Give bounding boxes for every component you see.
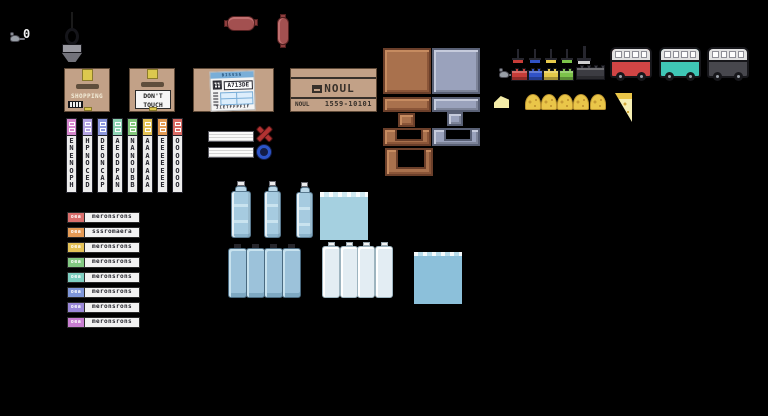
label-tab: oea (67, 227, 85, 238)
can-cap (143, 119, 152, 136)
sausage-end (254, 19, 258, 26)
o-mark-icon (257, 145, 271, 159)
label-text: meronsrons (85, 272, 140, 283)
name-label-6: oeameronsrons (67, 287, 140, 298)
water-bottle (296, 182, 313, 238)
box-handle (76, 84, 99, 89)
can-text: OOOOOOO (174, 138, 181, 190)
cheese-wedge-small (494, 96, 509, 108)
pin-red (512, 49, 524, 63)
brick-long-gray (576, 67, 605, 80)
brick-blue (528, 70, 543, 81)
name-label-4: oeameronsrons (67, 257, 140, 268)
noul-flag-icon (312, 85, 322, 93)
spray-can-2: HPNOCED (82, 118, 93, 193)
crate-brown-bracket-large (385, 148, 433, 176)
can-text: ENENOPH (68, 138, 75, 190)
water-block (320, 192, 368, 240)
counter-value: 0 (23, 27, 30, 41)
pin-yellow (545, 49, 557, 63)
shipping-label-footer: 3IETFFPFIF (211, 103, 254, 109)
brick-yellow (543, 70, 559, 81)
can-text: AEODPAN (114, 138, 121, 190)
cheese-chunk (590, 94, 606, 110)
spray-can-1: ENENOPH (66, 118, 77, 193)
cheese-chunk (525, 94, 541, 110)
can-text: NANOUBB (129, 138, 136, 190)
crate-silver-top (432, 48, 480, 94)
can-cap (173, 119, 182, 136)
sausage-vertical (276, 14, 290, 48)
barcode-icon (68, 101, 83, 108)
tape-strip (147, 69, 158, 79)
cheese-slice (615, 93, 632, 122)
claw-tip (62, 53, 82, 62)
label-tab: oea (67, 272, 85, 283)
wheel-icon (665, 72, 674, 81)
label-text: meronsrons (85, 242, 140, 253)
name-label-8: oeameronsrons (67, 317, 140, 328)
can-text: EEEEEEE (159, 138, 166, 190)
sausage-body (277, 17, 289, 45)
crate-brown-top (383, 48, 431, 94)
sausage-body (227, 16, 255, 31)
shopping-box: SHOPPING (64, 68, 110, 112)
claw-ring-icon (65, 28, 79, 45)
water-block (414, 252, 462, 304)
tape-strip (82, 69, 93, 81)
sausage-horizontal (224, 15, 258, 32)
name-label-7: oeameronsrons (67, 302, 140, 313)
crate-silver-lid (432, 97, 480, 112)
label-tab: oea (67, 287, 85, 298)
noul-brand-small: NOUL (295, 101, 309, 108)
shipping-label-header: BISVSG (210, 71, 253, 78)
blank-label-bar (208, 131, 254, 142)
pin-green (561, 49, 573, 63)
spray-can-8: OOOOOOO (172, 118, 183, 193)
label-tab: oea (67, 212, 85, 223)
water-bottle (264, 181, 281, 238)
can-text: HPNOCED (84, 138, 91, 190)
water-bottle (231, 181, 251, 238)
box-stripe (291, 77, 376, 79)
name-label-1: oeameronsrons (67, 212, 140, 223)
can-text: DEONCAP (99, 138, 106, 190)
tape-strip (84, 107, 92, 111)
sprite-sheet: 0 SHOPPING DON'T TOUCH BISVSG A713DE 3IE… (0, 0, 768, 416)
brick-red (511, 70, 528, 81)
mouse-body (499, 71, 509, 78)
cheese-chunk (573, 94, 589, 110)
noul-box: NOUL NOUL 1559-10101 (290, 68, 377, 112)
spray-can-7: EEEEEEE (157, 118, 168, 193)
wheel-icon (686, 72, 695, 81)
can-cap (158, 119, 167, 136)
bottle-pack-full (228, 244, 304, 302)
shipping-label-box: BISVSG A713DE 3IETFFPFIF (193, 68, 274, 112)
label-tab: oea (67, 317, 85, 328)
noul-logo-text: NOUL (324, 82, 355, 95)
wheel-icon (616, 72, 625, 81)
crate-silver-bracket (432, 128, 480, 146)
pin-large (577, 46, 591, 63)
can-text: AAAAAAA (144, 138, 151, 190)
crate-silver-neck (447, 112, 463, 126)
box-handle (141, 82, 164, 87)
wheel-icon (637, 72, 646, 81)
can-cap (113, 119, 122, 136)
can-cap (67, 119, 76, 136)
spray-can-5: NANOUBB (127, 118, 138, 193)
box-stripe (291, 97, 376, 99)
tape-strip (149, 107, 157, 111)
dont-touch-line1: DON'T (136, 92, 170, 101)
x-mark-icon (256, 127, 274, 141)
noul-serial: 1559-10101 (325, 100, 372, 108)
label-text: sssromaera (85, 227, 140, 238)
noul-logo: NOUL (291, 81, 376, 96)
label-text: meronsrons (85, 257, 140, 268)
claw-head (62, 44, 82, 53)
name-label-5: oeameronsrons (67, 272, 140, 283)
shipping-code: A713DE (224, 80, 253, 90)
cheese-chunk (557, 94, 573, 110)
shopping-box-label: SHOPPING (65, 93, 109, 100)
wheel-icon (713, 72, 722, 81)
spray-can-6: AAAAAAA (142, 118, 153, 193)
can-cap (83, 119, 92, 136)
blank-label-bar (208, 147, 254, 158)
wheel-icon (734, 72, 743, 81)
name-label-3: oeameronsrons (67, 242, 140, 253)
label-tab: oea (67, 257, 85, 268)
spray-can-3: DEONCAP (97, 118, 108, 193)
mouse-counter-icon (8, 32, 22, 43)
name-label-2: oeasssromaera (67, 227, 140, 238)
label-text: meronsrons (85, 317, 140, 328)
can-cap (98, 119, 107, 136)
crate-brown-lid (383, 97, 431, 112)
crate-brown-neck (398, 113, 415, 127)
label-text: meronsrons (85, 287, 140, 298)
shipping-label: BISVSG A713DE 3IETFFPFIF (209, 70, 255, 112)
label-tab: oea (67, 302, 85, 313)
pin-blue (529, 49, 541, 63)
can-cap (128, 119, 137, 136)
label-text: meronsrons (85, 212, 140, 223)
dont-touch-box: DON'T TOUCH (129, 68, 175, 112)
mouse-sprite (497, 68, 512, 80)
qr-code-icon (213, 80, 222, 89)
sausage-end (280, 44, 286, 48)
spray-can-4: AEODPAN (112, 118, 123, 193)
label-text: meronsrons (85, 302, 140, 313)
brick-green (559, 70, 574, 81)
cheese-chunk (541, 94, 557, 110)
crate-brown-bracket (383, 128, 431, 146)
label-tab: oea (67, 242, 85, 253)
bottle-pack-light (322, 242, 394, 302)
